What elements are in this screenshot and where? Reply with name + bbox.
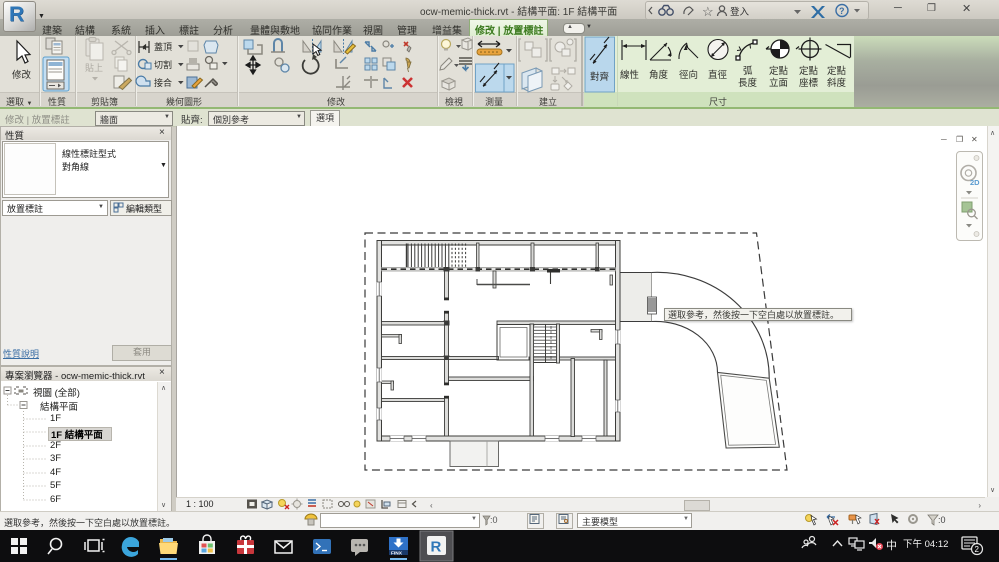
svg-text:?: ? bbox=[839, 6, 845, 16]
svg-text:2: 2 bbox=[975, 545, 980, 554]
svg-text:接合: 接合 bbox=[154, 77, 172, 88]
svg-text:座標: 座標 bbox=[799, 77, 819, 89]
svg-text:定點: 定點 bbox=[769, 65, 789, 77]
svg-text:徑向: 徑向 bbox=[679, 69, 698, 81]
svg-text:修改: 修改 bbox=[12, 69, 32, 81]
svg-text:斜度: 斜度 bbox=[827, 77, 847, 89]
svg-text:立面: 立面 bbox=[769, 77, 788, 89]
svg-text:定點: 定點 bbox=[827, 65, 847, 77]
svg-text:切割: 切割 bbox=[154, 59, 172, 70]
svg-text:角度: 角度 bbox=[649, 69, 669, 81]
svg-text:弧: 弧 bbox=[743, 65, 753, 77]
svg-text:☆: ☆ bbox=[702, 4, 714, 19]
svg-text:R: R bbox=[431, 539, 442, 556]
svg-text:蓋頂: 蓋頂 bbox=[154, 41, 172, 52]
svg-text:中: 中 bbox=[886, 539, 897, 552]
svg-text:FINX: FINX bbox=[391, 551, 403, 557]
svg-text:線性: 線性 bbox=[620, 69, 640, 81]
svg-text:2D: 2D bbox=[970, 178, 980, 187]
svg-text:對齊: 對齊 bbox=[590, 71, 610, 83]
svg-text:長度: 長度 bbox=[738, 77, 758, 89]
svg-text:直徑: 直徑 bbox=[708, 69, 728, 81]
svg-text:貼上: 貼上 bbox=[85, 62, 103, 73]
svg-text:登入: 登入 bbox=[730, 7, 750, 18]
svg-text:下午 04:12: 下午 04:12 bbox=[903, 538, 948, 550]
svg-text:定點: 定點 bbox=[799, 65, 819, 77]
